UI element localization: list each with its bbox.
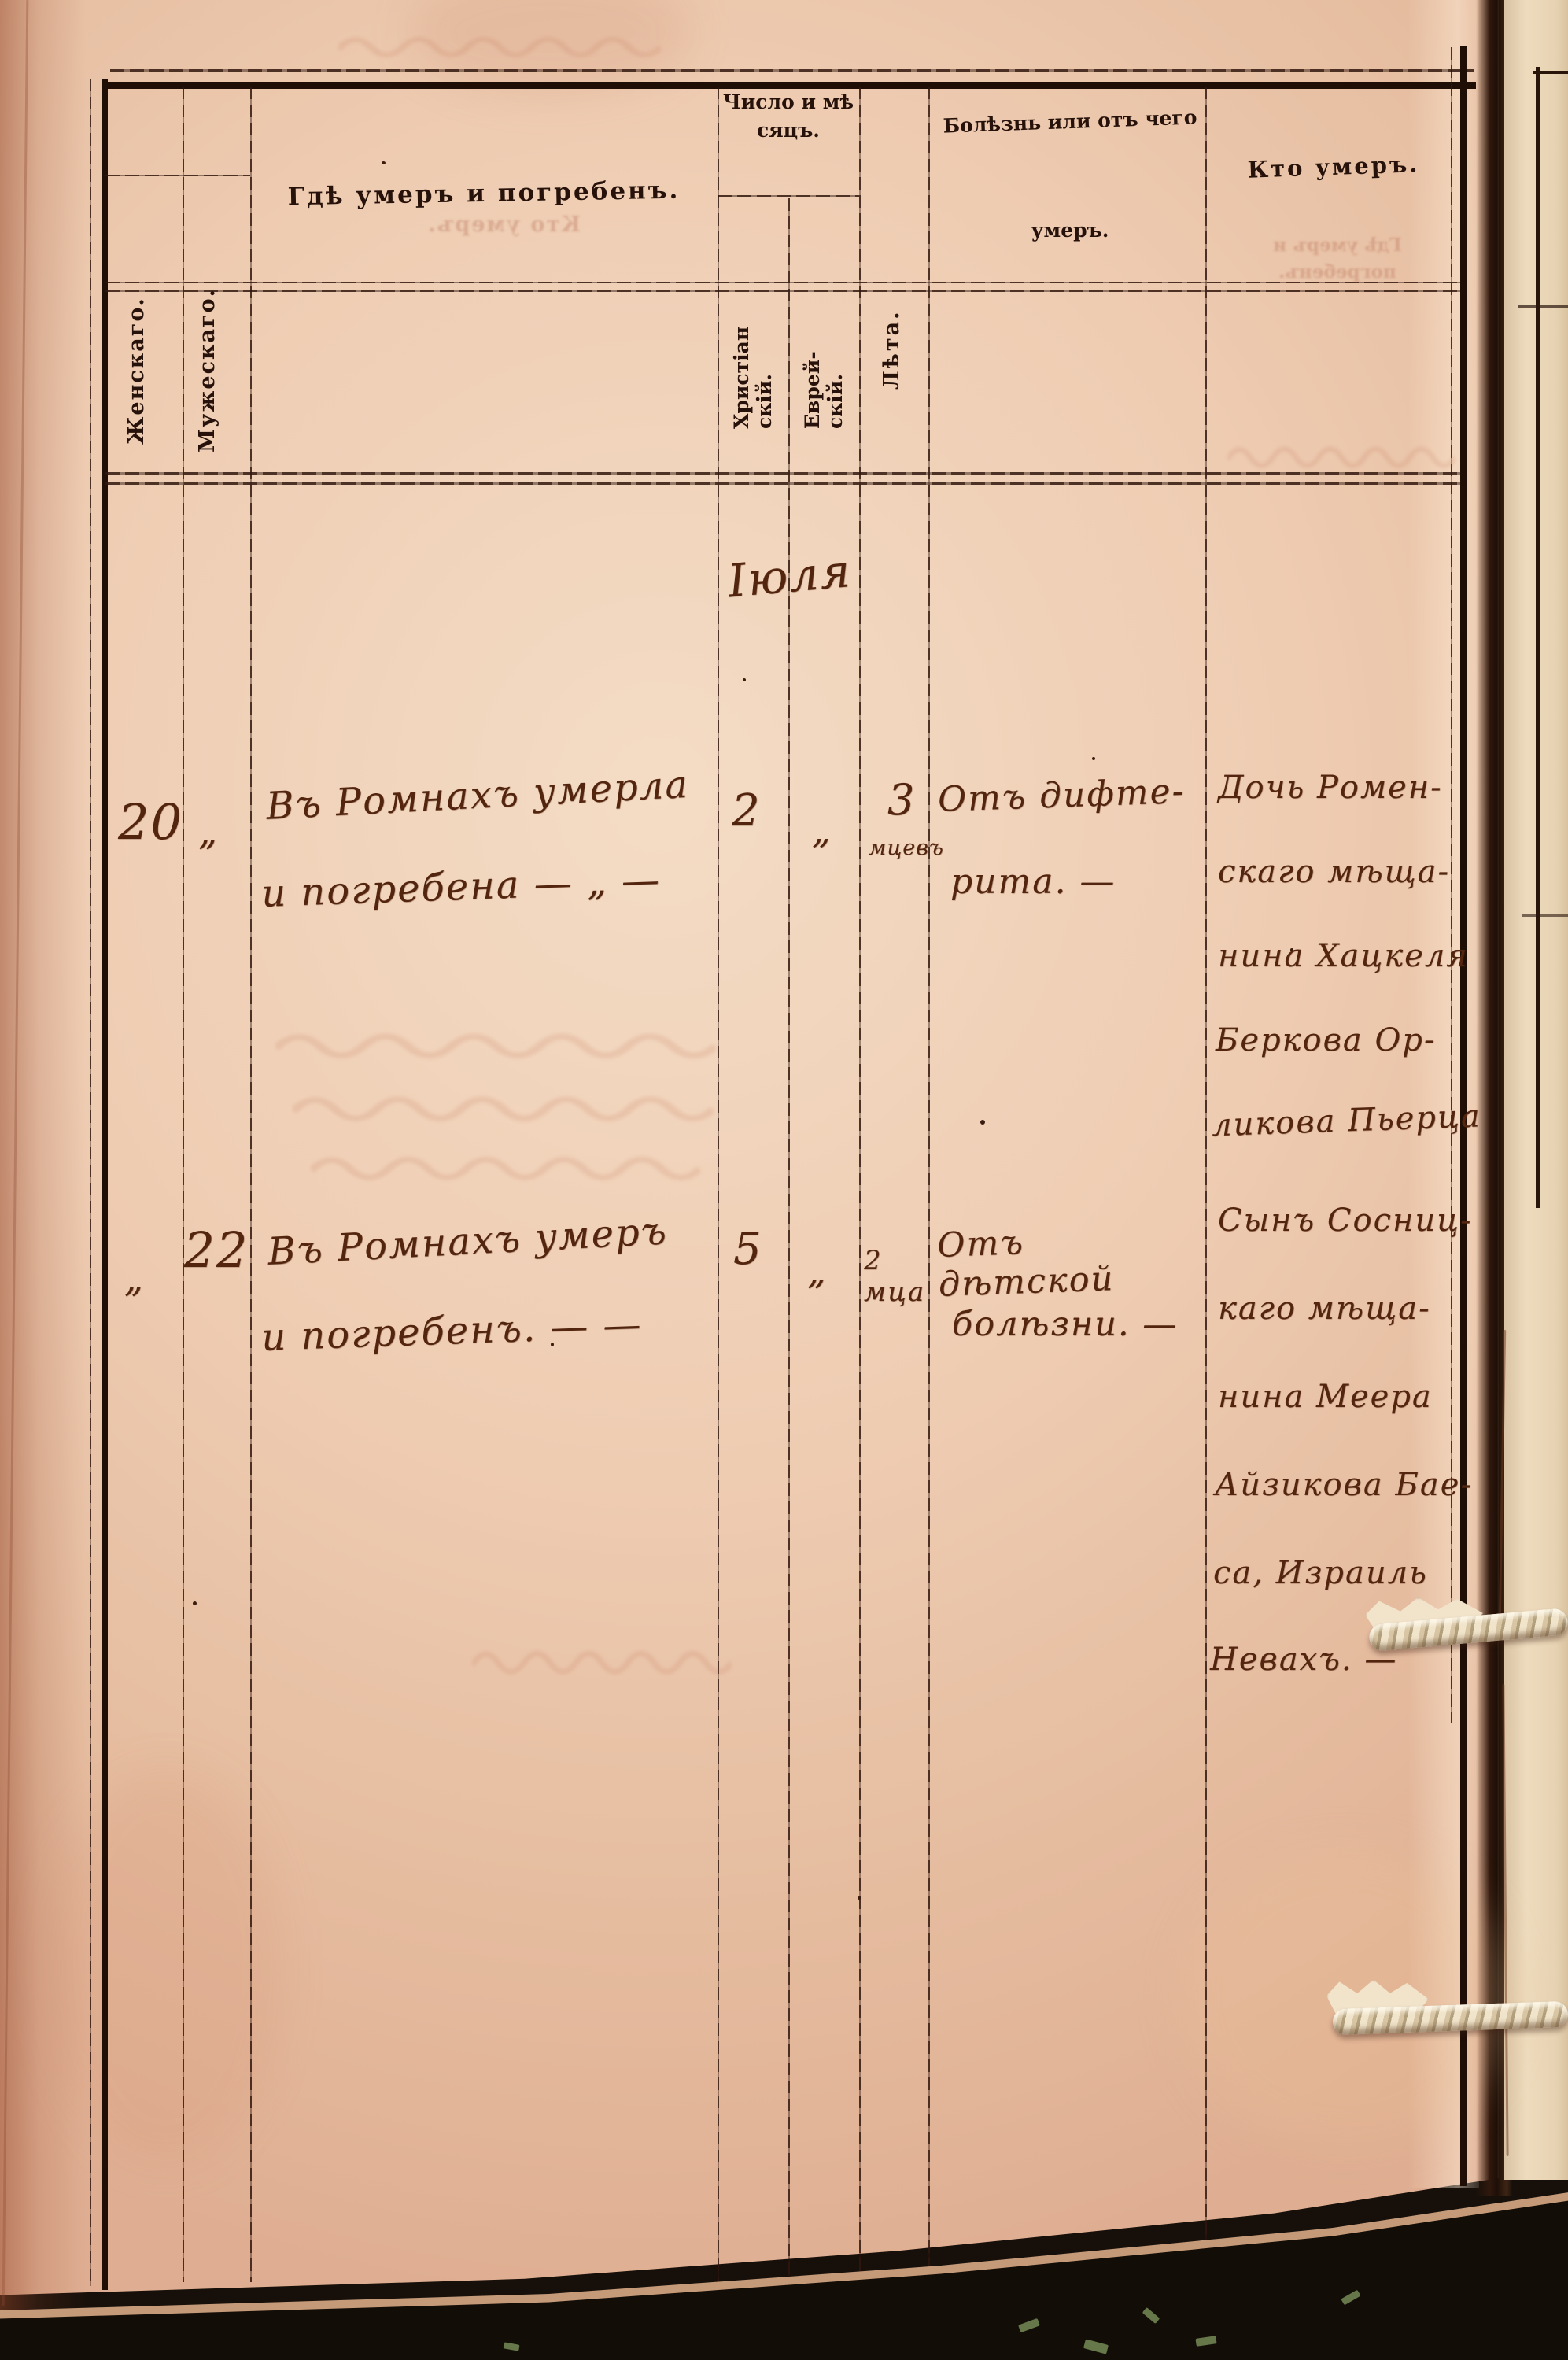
column-header-disease-line2: умеръ. (936, 219, 1204, 242)
entry2-who-line5: са, Израиль (1213, 1555, 1481, 1591)
entry2-cause-line2: болѣзни. — (952, 1305, 1212, 1344)
ink-speck (1092, 757, 1095, 760)
entry1-age-unit: мцевъ (869, 836, 944, 860)
ink-speck (1290, 948, 1293, 951)
entry2-who-line4: Айзикова Бае- (1215, 1467, 1482, 1503)
ink-speck (551, 1343, 554, 1346)
subheader-rule-2 (105, 482, 1460, 485)
next-page-hline (1522, 914, 1568, 917)
table-top-border-outer (110, 69, 1474, 72)
entry1-age-value: 3 (887, 775, 916, 825)
ink-speck (980, 1120, 985, 1125)
column-rule-where-date (718, 87, 719, 2282)
entry2-female-ditto: „ (124, 1258, 145, 1300)
column-rule-age-disease (928, 87, 930, 2282)
bleed-through-script (275, 1027, 716, 1070)
table-left-border-outer (90, 79, 91, 2286)
column-header-female: Женскаго. (124, 197, 149, 445)
bleed-through-script (338, 31, 661, 67)
page-curl-highlight (1408, 0, 1479, 2188)
column-header-male: Мужескаго. (195, 197, 220, 452)
table-left-border (102, 79, 108, 2290)
column-rule-disease-who (1205, 87, 1207, 2282)
entry1-male-ditto: „ (198, 811, 219, 853)
entry1-who-line1: Дочь Ромен- (1218, 770, 1485, 806)
next-page-hline (1533, 71, 1568, 74)
entry1-date-christian: 2 (732, 785, 762, 837)
entry2-who-line2: каго мѣща- (1218, 1291, 1485, 1327)
paper-stain (47, 1771, 283, 2164)
header-rule-sex-cols (105, 175, 250, 176)
entry2-date-christian: 5 (733, 1224, 763, 1275)
entry1-female-number: 20 (118, 793, 181, 851)
entry2-cause-line1: Отъ дѣтской (936, 1217, 1206, 1305)
column-header-date-jewish: Еврей- скій. (801, 209, 847, 429)
next-page-hline (1518, 305, 1568, 308)
entry1-who-line2: скаго мѣща- (1218, 854, 1485, 890)
entry1-who-line3: нина Хацкеля (1218, 938, 1485, 974)
header-rule-date-group (718, 195, 859, 197)
column-rule-female-male (183, 87, 184, 2282)
bleed-through-script (1227, 441, 1455, 478)
bleed-through-header-who-column: Гдѣ умеръ и погребенъ. (1223, 232, 1452, 286)
bleed-through-script (293, 1090, 714, 1133)
column-rule-jewish-age (859, 87, 861, 2282)
column-rule-christian-jewish (788, 198, 790, 2282)
entry1-who-line4: Беркова Ор- (1216, 1022, 1483, 1058)
column-header-date-christian: Христіан скій. (730, 209, 776, 429)
bleed-through-script (311, 1150, 700, 1191)
bleed-through-header-where-column: Кто умеръ. (338, 212, 669, 237)
ink-speck (743, 678, 746, 681)
entry2-who-line3: нина Меера (1218, 1379, 1485, 1415)
entry2-who-line1: Сынъ Сосниц- (1218, 1202, 1485, 1239)
entry1-cause-line2: рита. — (950, 862, 1210, 902)
entry2-age-value: 2 мца (864, 1245, 930, 1308)
entry1-date-jewish: „ (812, 809, 832, 851)
column-header-date-group: Число и мѣ сяцъ. (718, 88, 859, 145)
bleed-through-script (472, 1645, 732, 1686)
ink-speck (382, 161, 386, 164)
column-header-age: Лѣта. (880, 256, 904, 390)
entry2-date-jewish: „ (807, 1250, 828, 1292)
scanned-register-page: Женскаго. Мужескаго. Гдѣ умеръ и погребе… (0, 0, 1568, 2360)
next-page-vline (1536, 67, 1540, 1208)
ink-speck (858, 1896, 861, 1900)
entry2-who-line6: Невахъ. — (1210, 1642, 1478, 1678)
ink-speck (193, 1601, 197, 1605)
header-bottom-rule-2 (105, 290, 1460, 292)
entry2-male-number: 22 (183, 1221, 250, 1279)
column-rule-male-where (250, 87, 252, 2282)
